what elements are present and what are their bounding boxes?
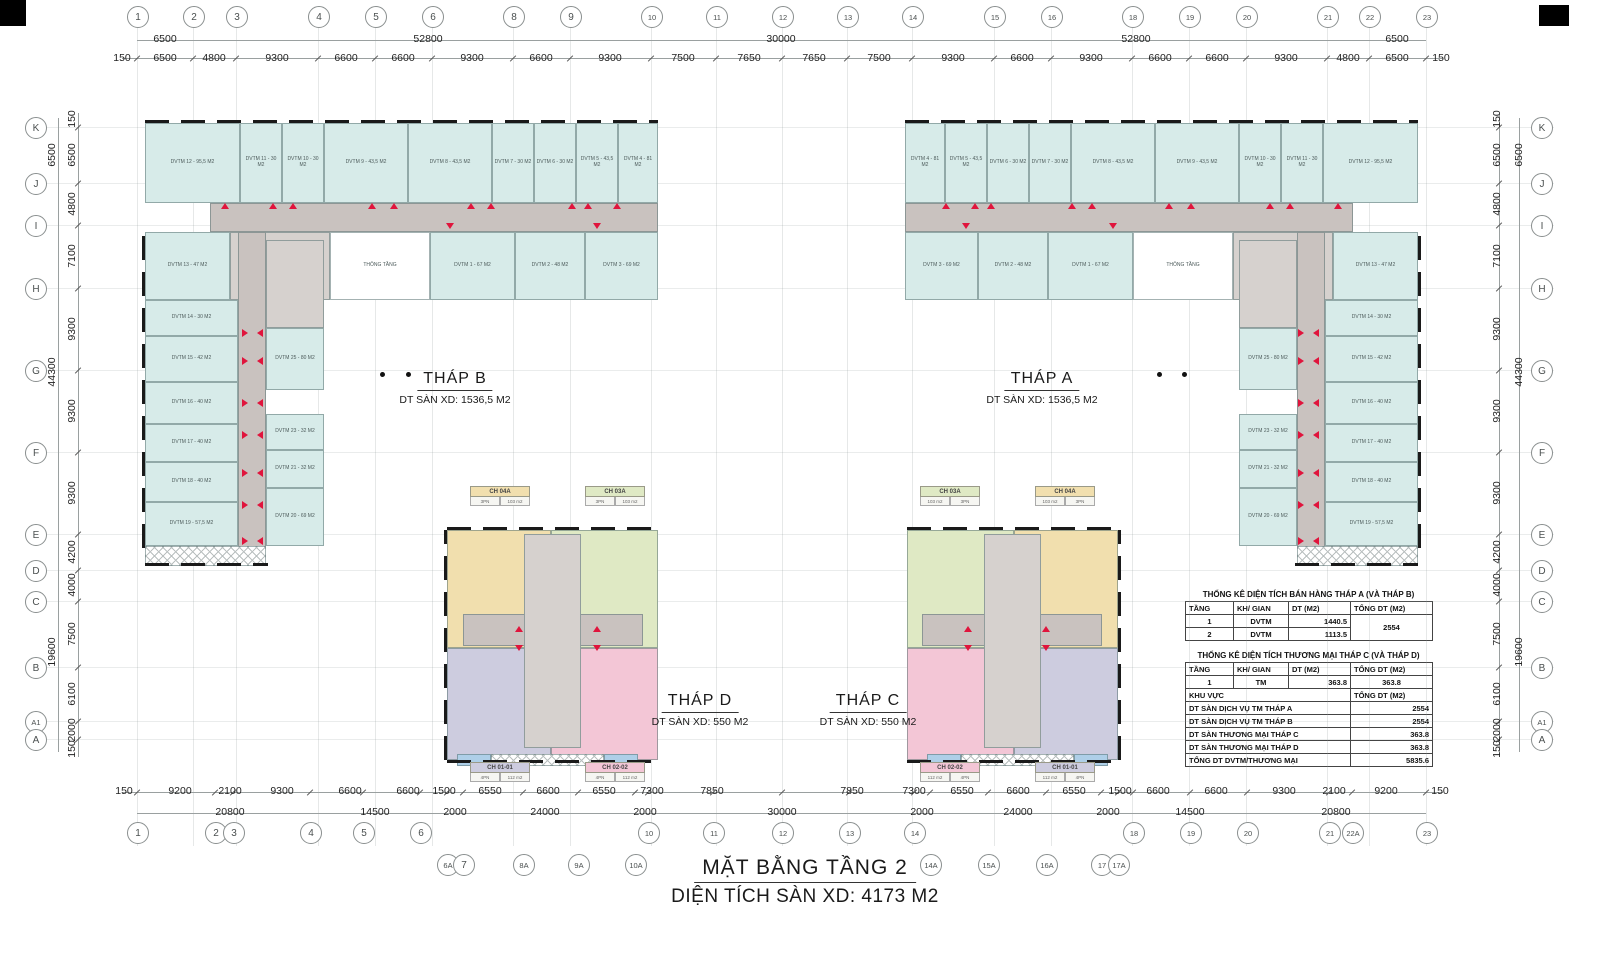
wall-segment — [145, 563, 268, 566]
direction-arrow — [1313, 431, 1319, 439]
direction-arrow — [1334, 203, 1342, 209]
grid-bubble-K: K — [1531, 117, 1553, 139]
dimension-label: 9300 — [1079, 52, 1102, 64]
room-label: DVTM 7 - 30 M2 — [494, 159, 533, 167]
grid-bubble-A: A — [25, 729, 47, 751]
dimension-label: 9300 — [598, 52, 621, 64]
unit-tag-cell: 3PN — [585, 497, 615, 506]
unit-tag-details: 112 m24PN — [920, 773, 980, 782]
room: DVTM 8 - 43,5 M2 — [408, 123, 492, 203]
grid-bubble-1: 1 — [127, 6, 149, 28]
tower-area: DT SÀN XD: 1536,5 M2 — [986, 394, 1097, 406]
unit-tag-details: 3PN103 m2 — [470, 497, 530, 506]
column-dot — [1157, 372, 1162, 377]
room-label: DVTM 14 - 30 M2 — [1351, 314, 1392, 322]
direction-arrow — [971, 203, 979, 209]
room-label: DVTM 18 - 40 M2 — [171, 478, 212, 486]
room-label: DVTM 12 - 95,5 M2 — [1348, 159, 1394, 167]
unit-tag-details: 3PN103 m2 — [585, 497, 645, 506]
direction-arrow — [242, 501, 248, 509]
table-cell: TỔNG DT (M2) — [1351, 602, 1433, 615]
room: DVTM 21 - 32 M2 — [266, 450, 324, 488]
dimension-label: 7500 — [66, 622, 78, 645]
direction-arrow — [1313, 469, 1319, 477]
dimension-label: 9300 — [66, 481, 78, 504]
dimension-label: 30000 — [766, 33, 795, 45]
grid-bubble-8: 8 — [503, 6, 525, 28]
dimension-label: 150 — [1491, 110, 1503, 128]
dimension-label: 30000 — [767, 806, 796, 818]
unit-tag-CH02-02: CH 02-02112 m24PN — [920, 762, 980, 782]
direction-arrow — [242, 469, 248, 477]
direction-arrow — [257, 469, 263, 477]
room-label: DVTM 8 - 43,5 M2 — [429, 159, 472, 167]
direction-arrow — [242, 431, 248, 439]
dimension-label: 2000 — [443, 806, 466, 818]
grid-bubble-23: 23 — [1416, 6, 1438, 28]
room-label: DVTM 20 - 69 M2 — [1247, 513, 1288, 521]
direction-arrow — [1313, 501, 1319, 509]
grid-bubble-15A: 15A — [978, 854, 1000, 876]
room-label: DVTM 25 - 80 M2 — [274, 355, 315, 363]
grid-bubble-11: 11 — [706, 6, 728, 28]
direction-arrow — [1165, 203, 1173, 209]
grid-bubble-8A: 8A — [513, 854, 535, 876]
building-area — [266, 240, 324, 328]
table-cell: 2 — [1186, 628, 1234, 641]
dimension-label: 7500 — [671, 52, 694, 64]
room: DVTM 7 - 30 M2 — [1029, 123, 1071, 203]
dimension-label: 7850 — [700, 785, 723, 797]
wall-segment — [145, 120, 658, 123]
unit-tag-cell: 112 m2 — [500, 773, 530, 782]
unit-tag-details: 4PN112 m2 — [470, 773, 530, 782]
direction-arrow — [1298, 329, 1304, 337]
table-cell: KH/ GIAN — [1234, 663, 1289, 676]
direction-arrow — [1266, 203, 1274, 209]
room-label: DVTM 11 - 30 M2 — [241, 156, 281, 170]
grid-bubble-9A: 9A — [568, 854, 590, 876]
grid-bubble-5: 5 — [353, 822, 375, 844]
grid-bubble-12: 12 — [772, 6, 794, 28]
direction-arrow — [242, 357, 248, 365]
direction-arrow — [568, 203, 576, 209]
direction-arrow — [221, 203, 229, 209]
dimension-label: 24000 — [1003, 806, 1032, 818]
grid-bubble-13: 13 — [837, 6, 859, 28]
room-label: DVTM 15 - 42 M2 — [1351, 355, 1392, 363]
unit-tag-CH01-01: CH 01-014PN112 m2 — [470, 762, 530, 782]
dimension-label: 7300 — [902, 785, 925, 797]
dimension-label: 6550 — [478, 785, 501, 797]
direction-arrow — [593, 645, 601, 651]
room-label: DVTM 12 - 95,5 M2 — [170, 159, 216, 167]
room: DVTM 20 - 69 M2 — [1239, 488, 1297, 546]
grid-line — [46, 601, 1554, 602]
room: DVTM 19 - 57,5 M2 — [1325, 502, 1418, 546]
wall-segment — [447, 527, 658, 530]
dimension-label: 7650 — [802, 52, 825, 64]
room: DVTM 4 - 81 M2 — [618, 123, 658, 203]
dimension-label: 150 — [115, 785, 133, 797]
tower-area: DT SÀN XD: 550 M2 — [820, 716, 917, 728]
dimension-label: 4800 — [66, 192, 78, 215]
grid-line — [137, 28, 138, 846]
grid-bubble-23: 23 — [1416, 822, 1438, 844]
room-label: DVTM 2 - 48 M2 — [531, 262, 570, 270]
grid-bubble-C: C — [1531, 591, 1553, 613]
table-cell: TỔNG DT DVTM/THƯƠNG MẠI — [1186, 754, 1351, 767]
room-label: DVTM 1 - 67 M2 — [1071, 262, 1110, 270]
dimension-label: 150 — [66, 740, 78, 758]
dimension-label: 150 — [113, 52, 131, 64]
room-label: DVTM 18 - 40 M2 — [1351, 478, 1392, 486]
table1-title: THỐNG KÊ DIỆN TÍCH BÁN HÀNG THÁP A (VÀ T… — [1185, 590, 1432, 599]
drawing-title-line1: MẶT BẰNG TẦNG 2 — [694, 856, 916, 883]
room-label: DVTM 2 - 48 M2 — [994, 262, 1033, 270]
grid-bubble-H: H — [1531, 278, 1553, 300]
tower-name: THÁP D — [662, 692, 738, 713]
room: DVTM 9 - 43,5 M2 — [324, 123, 408, 203]
grid-bubble-22A: 22A — [1342, 822, 1364, 844]
grid-bubble-B: B — [25, 657, 47, 679]
unit-tag-cell: 4PN — [470, 773, 500, 782]
grid-bubble-D: D — [1531, 560, 1553, 582]
direction-arrow — [446, 223, 454, 229]
grid-bubble-F: F — [25, 442, 47, 464]
table-cell: TẦNG — [1186, 663, 1234, 676]
dimension-label: 6500 — [66, 143, 78, 166]
direction-arrow — [987, 203, 995, 209]
grid-bubble-21: 21 — [1317, 6, 1339, 28]
room: DVTM 4 - 81 M2 — [905, 123, 945, 203]
direction-arrow — [1313, 537, 1319, 545]
wall-segment — [905, 120, 1418, 123]
unit-tag-CH03A: CH 03A103 m23PN — [920, 486, 980, 506]
direction-arrow — [1109, 223, 1117, 229]
dimension-label: 20800 — [1321, 806, 1350, 818]
grid-line — [1426, 28, 1427, 846]
room: DVTM 2 - 48 M2 — [515, 232, 585, 300]
room: DVTM 17 - 40 M2 — [145, 424, 238, 462]
table-cell: DVTM — [1234, 628, 1289, 641]
direction-arrow — [368, 203, 376, 209]
room: DVTM 2 - 48 M2 — [978, 232, 1048, 300]
dimension-label: 52800 — [1121, 33, 1150, 45]
direction-arrow — [1313, 399, 1319, 407]
direction-arrow — [1298, 469, 1304, 477]
grid-bubble-22: 22 — [1359, 6, 1381, 28]
room: DVTM 15 - 42 M2 — [145, 336, 238, 382]
room: DVTM 12 - 95,5 M2 — [1323, 123, 1418, 203]
unit-tag-cell: 4PN — [1065, 773, 1095, 782]
wall-segment — [142, 232, 145, 548]
grid-bubble-5: 5 — [365, 6, 387, 28]
unit-tag-details: 103 m23PN — [920, 497, 980, 506]
room-label: DVTM 9 - 43,5 M2 — [1176, 159, 1219, 167]
room-label: DVTM 6 - 30 M2 — [989, 159, 1028, 167]
grid-bubble-18: 18 — [1123, 822, 1145, 844]
room: DVTM 5 - 43,5 M2 — [945, 123, 987, 203]
room: DVTM 16 - 40 M2 — [145, 382, 238, 424]
dimension-label: 19600 — [1513, 637, 1525, 666]
wall-segment — [1295, 563, 1418, 566]
dimension-label: 2100 — [1322, 785, 1345, 797]
room: DVTM 20 - 69 M2 — [266, 488, 324, 546]
grid-bubble-21: 21 — [1319, 822, 1341, 844]
room-label: DVTM 15 - 42 M2 — [171, 355, 212, 363]
room-label: DVTM 16 - 40 M2 — [171, 399, 212, 407]
grid-bubble-G: G — [1531, 360, 1553, 382]
room: DVTM 25 - 80 M2 — [266, 328, 324, 390]
dimension-label: 9300 — [265, 52, 288, 64]
dimension-label: 19600 — [46, 637, 58, 666]
dimension-label: 4000 — [1491, 573, 1503, 596]
table-cell: KHU VỰC — [1186, 689, 1351, 702]
table-cell: 363.8 — [1351, 741, 1433, 754]
direction-arrow — [257, 501, 263, 509]
column-dot — [406, 372, 411, 377]
dimension-label: 6500 — [1385, 33, 1408, 45]
dimension-label: 6500 — [1491, 143, 1503, 166]
room-label: DVTM 19 - 57,5 M2 — [1349, 520, 1395, 528]
room-label: DVTM 13 - 47 M2 — [167, 262, 208, 270]
wall-segment — [444, 530, 447, 760]
dimension-label: 150 — [1431, 785, 1449, 797]
room-label: DVTM 17 - 40 M2 — [1351, 439, 1392, 447]
grid-bubble-A: A — [1531, 729, 1553, 751]
dimension-label: 4200 — [66, 540, 78, 563]
building-area — [524, 534, 581, 748]
dimension-label: 9200 — [1374, 785, 1397, 797]
room: DVTM 17 - 40 M2 — [1325, 424, 1418, 462]
grid-bubble-4: 4 — [308, 6, 330, 28]
dimension-label: 9300 — [1491, 317, 1503, 340]
room-label: DVTM 6 - 30 M2 — [536, 159, 575, 167]
room-label: DVTM 4 - 81 M2 — [906, 156, 944, 170]
grid-bubble-I: I — [1531, 215, 1553, 237]
unit-tag-details: 103 m23PN — [1035, 497, 1095, 506]
grid-bubble-19: 19 — [1180, 822, 1202, 844]
commercial-area-table: TẦNGKH/ GIANDT (M2)TỔNG DT (M2)1TM363.83… — [1185, 662, 1433, 767]
grid-bubble-16A: 16A — [1036, 854, 1058, 876]
dimension-label: 2000 — [633, 806, 656, 818]
direction-arrow — [584, 203, 592, 209]
grid-bubble-6: 6 — [410, 822, 432, 844]
room-label: DVTM 7 - 30 M2 — [1031, 159, 1070, 167]
table-cell: 1440.5 — [1289, 615, 1351, 628]
room-label: DVTM 23 - 32 M2 — [274, 428, 315, 436]
dimension-label: 20800 — [215, 806, 244, 818]
tower-name: THÁP A — [1005, 370, 1080, 391]
dimension-label: 4000 — [66, 573, 78, 596]
tower-label-THÁP-B: THÁP BDT SÀN XD: 1536,5 M2 — [399, 370, 510, 406]
grid-bubble-10: 10 — [638, 822, 660, 844]
direction-arrow — [613, 203, 621, 209]
direction-arrow — [289, 203, 297, 209]
room: DVTM 3 - 69 M2 — [585, 232, 658, 300]
grid-bubble-10A: 10A — [625, 854, 647, 876]
room: DVTM 23 - 32 M2 — [266, 414, 324, 450]
dimension-label: 24000 — [530, 806, 559, 818]
table2-title: THỐNG KÊ DIỆN TÍCH THƯƠNG MẠI THÁP C (VÀ… — [1185, 651, 1432, 660]
room-label: DVTM 10 - 30 M2 — [1240, 156, 1280, 170]
dimension-label: 6600 — [334, 52, 357, 64]
unit-tag-code: CH 01-01 — [1035, 762, 1095, 773]
table-cell: 5835.6 — [1351, 754, 1433, 767]
dimension-label: 150 — [1432, 52, 1450, 64]
dimension-label: 1500 — [432, 785, 455, 797]
direction-arrow — [1298, 431, 1304, 439]
grid-line — [46, 721, 1554, 722]
direction-arrow — [257, 399, 263, 407]
dimension-label: 6600 — [391, 52, 414, 64]
direction-arrow — [487, 203, 495, 209]
grid-bubble-4: 4 — [300, 822, 322, 844]
direction-arrow — [593, 626, 601, 632]
dimension-label: 6550 — [592, 785, 615, 797]
direction-arrow — [1298, 357, 1304, 365]
dimension-label: 2000 — [910, 806, 933, 818]
dimension-label: 6600 — [1010, 52, 1033, 64]
room-label: DVTM 10 - 30 M2 — [283, 156, 323, 170]
direction-arrow — [467, 203, 475, 209]
direction-arrow — [962, 223, 970, 229]
drawing-title-line2: DIỆN TÍCH SÀN XD: 4173 M2 — [671, 886, 939, 908]
unit-tag-code: CH 01-01 — [470, 762, 530, 773]
dimension-label: 14500 — [360, 806, 389, 818]
room: DVTM 18 - 40 M2 — [1325, 462, 1418, 502]
grid-bubble-B: B — [1531, 657, 1553, 679]
room-label: DVTM 21 - 32 M2 — [274, 465, 315, 473]
unit-tag-cell: 112 m2 — [1035, 773, 1065, 782]
table-cell: DT (M2) — [1289, 663, 1351, 676]
tower-area: DT SÀN XD: 1536,5 M2 — [399, 394, 510, 406]
dimension-label: 6600 — [1146, 785, 1169, 797]
unit-tag-details: 112 m24PN — [1035, 773, 1095, 782]
dimension-label: 150 — [66, 110, 78, 128]
room-label: DVTM 4 - 81 M2 — [619, 156, 657, 170]
unit-tag-cell: 4PN — [950, 773, 980, 782]
direction-arrow — [1313, 357, 1319, 365]
dimension-label: 44300 — [1513, 357, 1525, 386]
room: DVTM 6 - 30 M2 — [534, 123, 576, 203]
grid-bubble-D: D — [25, 560, 47, 582]
dimension-label: 9200 — [168, 785, 191, 797]
grid-bubble-14: 14 — [902, 6, 924, 28]
dimension-label: 6100 — [66, 682, 78, 705]
table-cell: 1 — [1186, 615, 1234, 628]
direction-arrow — [242, 537, 248, 545]
dimension-label: 7500 — [867, 52, 890, 64]
dimension-label: 2000 — [1096, 806, 1119, 818]
table-cell: 363.8 — [1289, 676, 1351, 689]
column-dot — [380, 372, 385, 377]
direction-arrow — [257, 357, 263, 365]
table-cell: DT (M2) — [1289, 602, 1351, 615]
room: DVTM 7 - 30 M2 — [492, 123, 534, 203]
grid-bubble-J: J — [1531, 173, 1553, 195]
building-area — [984, 534, 1041, 748]
unit-tag-cell: 4PN — [585, 773, 615, 782]
direction-arrow — [242, 329, 248, 337]
unit-tag-cell: 103 m2 — [500, 497, 530, 506]
dimension-label: 7500 — [1491, 622, 1503, 645]
unit-tag-cell: 112 m2 — [920, 773, 950, 782]
dimension-label: 6600 — [1205, 52, 1228, 64]
grid-bubble-19: 19 — [1179, 6, 1201, 28]
unit-tag-CH03A: CH 03A3PN103 m2 — [585, 486, 645, 506]
room: DVTM 21 - 32 M2 — [1239, 450, 1297, 488]
dimension-label: 7850 — [840, 785, 863, 797]
grid-bubble-3: 3 — [226, 6, 248, 28]
tower-area: DT SÀN XD: 550 M2 — [652, 716, 749, 728]
wall-segment — [1418, 232, 1421, 548]
room: DVTM 12 - 95,5 M2 — [145, 123, 240, 203]
table-cell: 1 — [1186, 676, 1234, 689]
room: DVTM 1 - 67 M2 — [430, 232, 515, 300]
room-label: DVTM 3 - 69 M2 — [602, 262, 641, 270]
room-label: DVTM 1 - 67 M2 — [453, 262, 492, 270]
dimension-label: 6500 — [153, 52, 176, 64]
room: DVTM 8 - 43,5 M2 — [1071, 123, 1155, 203]
dimension-label: 7300 — [640, 785, 663, 797]
dimension-label: 6600 — [529, 52, 552, 64]
dimension-label: 7650 — [737, 52, 760, 64]
grid-bubble-9: 9 — [560, 6, 582, 28]
unit-tag-code: CH 04A — [470, 486, 530, 497]
direction-arrow — [515, 645, 523, 651]
direction-arrow — [1042, 645, 1050, 651]
tower-label-THÁP-C: THÁP CDT SÀN XD: 550 M2 — [820, 692, 917, 728]
room-label: DVTM 5 - 43,5 M2 — [577, 156, 617, 170]
room: DVTM 16 - 40 M2 — [1325, 382, 1418, 424]
direction-arrow — [515, 626, 523, 632]
dimension-label: 6100 — [1491, 682, 1503, 705]
grid-bubble-I: I — [25, 215, 47, 237]
room: DVTM 1 - 67 M2 — [1048, 232, 1133, 300]
dimension-label: 4800 — [1491, 192, 1503, 215]
grid-line — [46, 570, 1554, 571]
dimension-label: 2000 — [1491, 718, 1503, 741]
grid-bubble-10: 10 — [641, 6, 663, 28]
room: DVTM 9 - 43,5 M2 — [1155, 123, 1239, 203]
room: DVTM 6 - 30 M2 — [987, 123, 1029, 203]
room: DVTM 3 - 69 M2 — [905, 232, 978, 300]
grid-line — [46, 667, 1554, 668]
unit-tag-CH01-01: CH 01-01112 m24PN — [1035, 762, 1095, 782]
direction-arrow — [593, 223, 601, 229]
dimension-label: 9300 — [1272, 785, 1295, 797]
grid-bubble-20: 20 — [1236, 6, 1258, 28]
dimension-label: 14500 — [1175, 806, 1204, 818]
grid-bubble-H: H — [25, 278, 47, 300]
unit-tag-code: CH 03A — [920, 486, 980, 497]
dimension-label: 6600 — [338, 785, 361, 797]
direction-arrow — [964, 645, 972, 651]
direction-arrow — [1088, 203, 1096, 209]
room-label: DVTM 20 - 69 M2 — [274, 513, 315, 521]
room: DVTM 11 - 30 M2 — [240, 123, 282, 203]
dimension-line — [78, 113, 79, 757]
dimension-label: 6500 — [1385, 52, 1408, 64]
tower-name: THÁP C — [830, 692, 906, 713]
room: DVTM 19 - 57,5 M2 — [145, 502, 238, 546]
dimension-label: 6600 — [1204, 785, 1227, 797]
unit-tag-details: 4PN112 m2 — [585, 773, 645, 782]
dimension-label: 9300 — [460, 52, 483, 64]
dimension-label: 150 — [1491, 740, 1503, 758]
